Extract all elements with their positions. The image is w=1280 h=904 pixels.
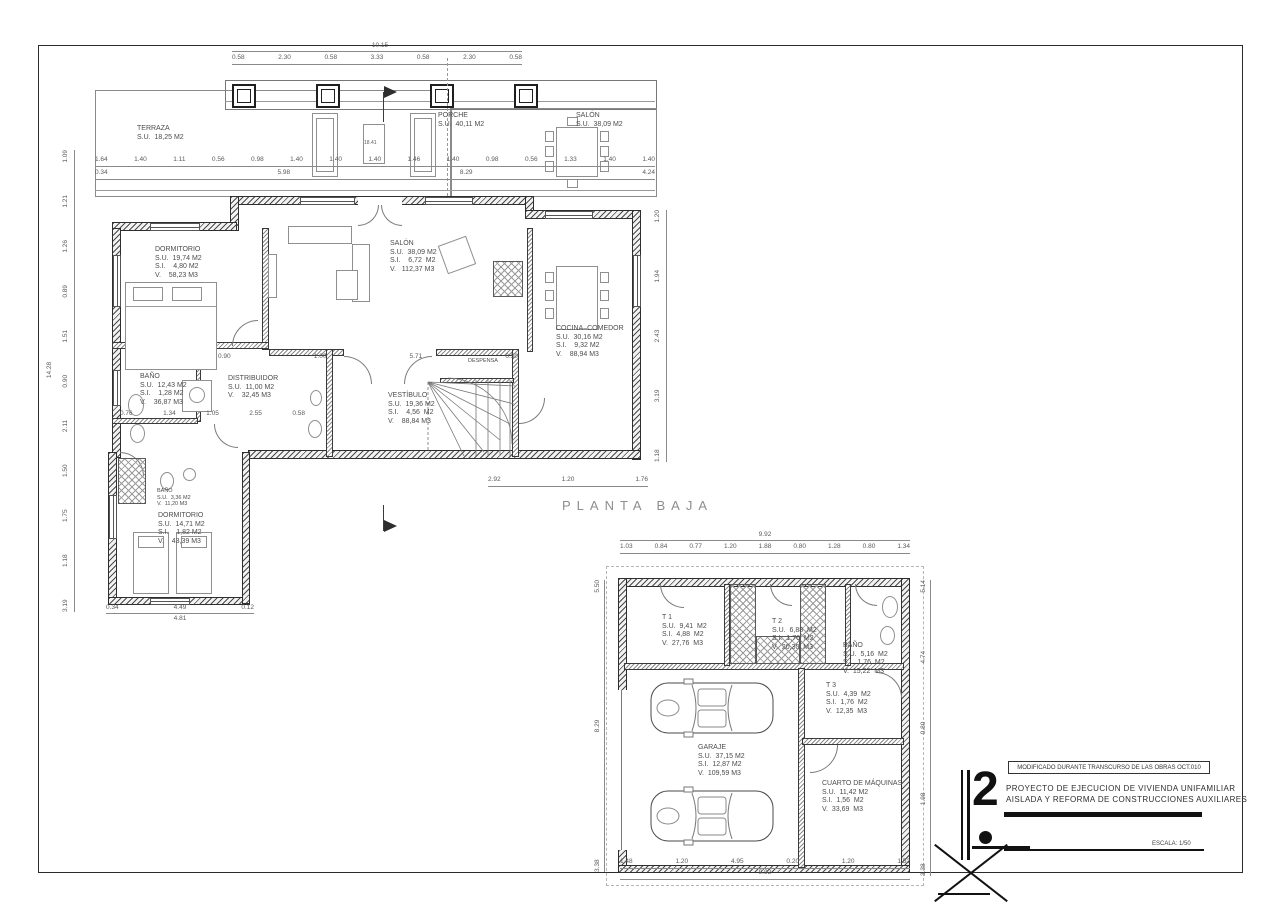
dimension-line xyxy=(604,580,605,872)
title-underline xyxy=(1004,812,1202,817)
partition-wall xyxy=(802,738,904,745)
window-icon xyxy=(109,495,117,539)
dimension-line xyxy=(666,210,667,462)
room-volume: V. 58,23 M3 xyxy=(155,272,202,281)
dimension-text: 3.38 8.29 5.50 xyxy=(594,580,601,872)
room-name: DORMITORIO xyxy=(158,512,205,521)
room-bano-small: BAÑO S.U. 3,36 M2 V. 11,20 M3 xyxy=(157,488,191,508)
room-name: BAÑO xyxy=(843,642,888,651)
partition-wall xyxy=(112,418,198,424)
dimension-text: 2.92 1.20 1.76 xyxy=(488,476,648,483)
chair-icon xyxy=(600,290,609,301)
room-name: BAÑO xyxy=(140,373,187,382)
deco-line xyxy=(967,770,970,860)
closet-icon xyxy=(118,458,146,504)
window-icon xyxy=(113,370,121,406)
pillow-icon xyxy=(172,287,202,301)
dimension-text: 0.58 2.30 0.58 3.33 0.58 2.30 0.58 xyxy=(232,54,522,61)
room-volume: V. 32,45 M3 xyxy=(228,392,278,401)
project-title-line1: PROYECTO DE EJECUCION DE VIVIENDA UNIFAM… xyxy=(1006,784,1235,794)
garage-door-line xyxy=(621,690,622,850)
room-dormitorio: DORMITORIO S.U. 19,74 M2 S.I. 4,80 M2 V.… xyxy=(155,246,202,280)
room-name: PORCHE xyxy=(438,112,484,121)
room-name: GARAJE xyxy=(698,744,745,753)
chair-icon xyxy=(545,272,554,283)
room-name: T 3 xyxy=(826,682,871,691)
chair-icon xyxy=(600,272,609,283)
dimension-line xyxy=(620,540,910,541)
room-name: SALÓN xyxy=(390,240,437,249)
room-area: S.U. 5,16 M2 xyxy=(843,651,888,660)
porch-step-line xyxy=(95,190,655,191)
room-bano: BAÑO S.U. 12,43 M2 S.I. 1,28 M2 V. 36,87… xyxy=(140,373,187,407)
chair-icon xyxy=(545,308,554,319)
room-area: S.I. 4,88 M2 xyxy=(662,631,707,640)
room-name: DISTRIBUIDOR xyxy=(228,375,278,384)
car-icon xyxy=(648,678,776,738)
room-name: DORMITORIO xyxy=(155,246,202,255)
porch-note: 18.41 xyxy=(364,140,377,146)
room-area: S.U. 14,71 M2 xyxy=(158,521,205,530)
dimension-line xyxy=(106,613,254,614)
room-area: S.U. 4,39 M2 xyxy=(826,691,871,700)
room-area: S.U. 11,00 M2 xyxy=(228,384,278,393)
sink-icon xyxy=(882,596,898,618)
window-icon xyxy=(633,255,641,307)
room-name: COCINA–COMEDOR xyxy=(556,325,624,334)
partition-wall xyxy=(798,668,805,868)
title-rule xyxy=(1004,849,1204,851)
closet-icon xyxy=(730,584,756,664)
tv-cabinet-icon xyxy=(268,254,277,298)
room-t3: T 3 S.U. 4,39 M2 S.I. 1,76 M2 V. 12,35 M… xyxy=(826,682,871,716)
room-volume: V. 88,94 M3 xyxy=(556,351,624,360)
dimension-text: 10.15 xyxy=(350,42,410,49)
dimension-text: 3.38 1.98 0.80 4.74 5.14 xyxy=(920,580,927,876)
room-volume: V. 27,76 M3 xyxy=(662,640,707,649)
dimension-text: 1.18 3.19 2.43 1.94 1.20 xyxy=(654,210,661,462)
wall xyxy=(901,578,910,873)
room-t2: T 2 S.U. 6,88 M2 S.I. 1,76 M2 V. 20,30 M… xyxy=(772,618,817,652)
column-icon xyxy=(316,84,340,108)
dimension-text: 9.92 xyxy=(735,869,795,876)
sink-icon xyxy=(183,468,196,481)
room-volume: V. 15,22 M3 xyxy=(843,668,888,677)
fireplace-icon xyxy=(493,261,523,297)
room-volume: V. 43,39 M3 xyxy=(158,538,205,547)
room-area: S.I. 6,72 M2 xyxy=(390,257,437,266)
room-area: S.I. 1,76 M2 xyxy=(826,699,871,708)
partition-wall xyxy=(326,349,333,457)
dimension-line xyxy=(620,553,910,554)
window-icon xyxy=(545,211,593,219)
deco-line xyxy=(961,770,963,860)
column-icon xyxy=(430,84,454,108)
toilet-icon xyxy=(130,424,145,443)
pillow-icon xyxy=(133,287,163,301)
room-area: S.I. 1,76 M2 xyxy=(843,659,888,668)
room-area: S.U. 12,43 M2 xyxy=(140,382,187,391)
room-area: S.I. 1,56 M2 xyxy=(822,797,902,806)
wall xyxy=(632,210,641,460)
sink-icon xyxy=(310,390,322,406)
chair-icon xyxy=(545,131,554,142)
coffee-table-icon xyxy=(336,270,358,300)
window-icon xyxy=(150,223,200,231)
dimension-text: 0.34 5.98 8.29 4.24 xyxy=(95,169,655,176)
drawing-sheet: 10.15 0.58 2.30 0.58 3.33 0.58 2.30 0.58… xyxy=(0,0,1280,904)
room-volume: V. 112,37 M3 xyxy=(390,266,437,275)
room-area: S.U. 6,88 M2 xyxy=(772,627,817,636)
dining-table-icon xyxy=(556,266,598,330)
chair-icon xyxy=(545,290,554,301)
room-area: S.U. 30,16 M2 xyxy=(556,334,624,343)
room-volume: V. 88,84 M3 xyxy=(388,418,435,427)
dimension-text: 3.19 1.18 1.75 1.50 2.11 0.90 1.51 0.89 … xyxy=(62,150,69,612)
dimension-text: 1.48 1.20 4.95 0.20 1.20 1.52 xyxy=(620,858,910,865)
room-area: S.U. 19,36 M2 xyxy=(388,401,435,410)
room-distribuidor: DISTRIBUIDOR S.U. 11,00 M2 V. 32,45 M3 xyxy=(228,375,278,401)
room-salon: SALÓN S.U. 38,09 M2 S.I. 6,72 M2 V. 112,… xyxy=(390,240,437,274)
room-name: TERRAZA xyxy=(137,125,184,134)
blanket-line xyxy=(126,306,216,307)
deco-line xyxy=(938,893,990,895)
column-icon xyxy=(514,84,538,108)
plan-title: PLANTA BAJA xyxy=(562,498,713,513)
section-flag-icon xyxy=(384,520,397,532)
room-volume: V. 20,30 M3 xyxy=(772,644,817,653)
column-icon xyxy=(232,84,256,108)
window-icon xyxy=(113,255,121,307)
window-icon xyxy=(425,197,473,205)
room-terraza: TERRAZA S.U. 18,25 M2 xyxy=(137,125,184,142)
wall xyxy=(242,452,250,604)
room-volume: V. 33,69 M3 xyxy=(822,806,902,815)
room-name: T 2 xyxy=(772,618,817,627)
dimension-line xyxy=(620,879,910,880)
room-garaje: GARAJE S.U. 37,15 M2 S.I. 12,87 M2 V. 10… xyxy=(698,744,745,778)
room-name: VESTÍBULO xyxy=(388,392,435,401)
porch-sofa-cushion xyxy=(316,118,334,172)
dimension-line xyxy=(95,179,655,180)
room-despensa: DESPENSA xyxy=(468,358,498,365)
room-name: CUARTO DE MÁQUINAS xyxy=(822,780,902,789)
chair-icon xyxy=(600,308,609,319)
room-name: T 1 xyxy=(662,614,707,623)
revision-note-box: MODIFICADO DURANTE TRANSCURSO DE LAS OBR… xyxy=(1008,761,1210,774)
dimension-line xyxy=(488,486,648,487)
room-area: S.U. 19,74 M2 xyxy=(155,255,202,264)
car-icon xyxy=(648,786,776,846)
chair-icon xyxy=(600,131,609,142)
porch-sofa-cushion xyxy=(414,118,432,172)
room-volume: V. 36,87 M3 xyxy=(140,399,187,408)
room-area: S.U. 11,42 M2 xyxy=(822,789,902,798)
room-area: S.U. 18,25 M2 xyxy=(137,134,184,143)
dimension-text: 1.64 1.40 1.11 0.56 0.98 1.40 1.40 1.40 … xyxy=(95,156,655,163)
dimension-line xyxy=(95,166,655,167)
dimension-line xyxy=(930,580,931,876)
room-dormitorio-2: DORMITORIO S.U. 14,71 M2 S.I. 1,82 M2 V.… xyxy=(158,512,205,546)
room-area: S.I. 4,80 M2 xyxy=(155,263,202,272)
room-t1: T 1 S.U. 9,41 M2 S.I. 4,88 M2 V. 27,76 M… xyxy=(662,614,707,648)
sheet-number: 2 xyxy=(972,766,999,814)
project-title-line2: AISLADA Y REFORMA DE CONSTRUCCIONES AUXI… xyxy=(1006,795,1247,805)
dimension-line xyxy=(232,51,522,52)
dimension-line xyxy=(74,150,75,612)
dimension-text: 0.76 1.34 1.05 2.55 0.58 xyxy=(120,410,305,417)
dimension-text: 1.03 0.84 0.77 1.20 1.88 0.80 1.28 0.80 … xyxy=(620,543,910,550)
room-area: S.I. 1,28 M2 xyxy=(140,390,187,399)
room-area: S.I. 12,87 M2 xyxy=(698,761,745,770)
room-area: S.U. 38,09 M2 xyxy=(390,249,437,258)
room-area: S.U. 9,41 M2 xyxy=(662,623,707,632)
toilet-icon xyxy=(308,420,322,438)
room-volume: V. 109,59 M3 xyxy=(698,770,745,779)
garage-door-opening xyxy=(618,690,627,850)
dimension-text: 4.81 xyxy=(158,615,202,622)
shower-drain-icon xyxy=(189,387,205,403)
room-area: S.U. 38,09 M2 xyxy=(576,121,623,130)
window-icon xyxy=(300,197,355,205)
room-volume: V. 11,20 M3 xyxy=(157,501,191,508)
room-name: SALÓN xyxy=(576,112,623,121)
room-bano-garage: BAÑO S.U. 5,16 M2 S.I. 1,76 M2 V. 15,22 … xyxy=(843,642,888,676)
room-porche: PORCHE S.U. 40,11 M2 xyxy=(438,112,484,129)
dimension-text: 14.28 xyxy=(46,270,53,470)
room-cuarto-maquinas: CUARTO DE MÁQUINAS S.U. 11,42 M2 S.I. 1,… xyxy=(822,780,902,814)
dimension-text: 0.34 4.49 0.12 xyxy=(106,604,254,611)
room-salon-porch: SALÓN S.U. 38,09 M2 xyxy=(576,112,623,129)
room-area: S.I. 9,32 M2 xyxy=(556,342,624,351)
door-opening xyxy=(358,197,402,205)
room-volume: V. 12,35 M3 xyxy=(826,708,871,717)
room-area: S.I. 4,56 M2 xyxy=(388,409,435,418)
dimension-text: 9.92 xyxy=(735,531,795,538)
dimension-line xyxy=(232,64,522,65)
chair-icon xyxy=(567,179,578,188)
room-area: S.U. 37,15 M2 xyxy=(698,753,745,762)
partition-wall xyxy=(527,228,533,352)
room-area: S.U. 40,11 M2 xyxy=(438,121,484,130)
room-area: S.I. 1,76 M2 xyxy=(772,635,817,644)
room-cocina-comedor: COCINA–COMEDOR S.U. 30,16 M2 S.I. 9,32 M… xyxy=(556,325,624,359)
section-flag-icon xyxy=(384,86,397,98)
room-vestibulo: VESTÍBULO S.U. 19,36 M2 S.I. 4,56 M2 V. … xyxy=(388,392,435,426)
scale-label: ESCALA: 1/50 xyxy=(1152,841,1191,847)
deco-dot xyxy=(979,831,992,844)
room-area: S.I. 1,82 M2 xyxy=(158,529,205,538)
sofa-icon xyxy=(288,226,352,244)
